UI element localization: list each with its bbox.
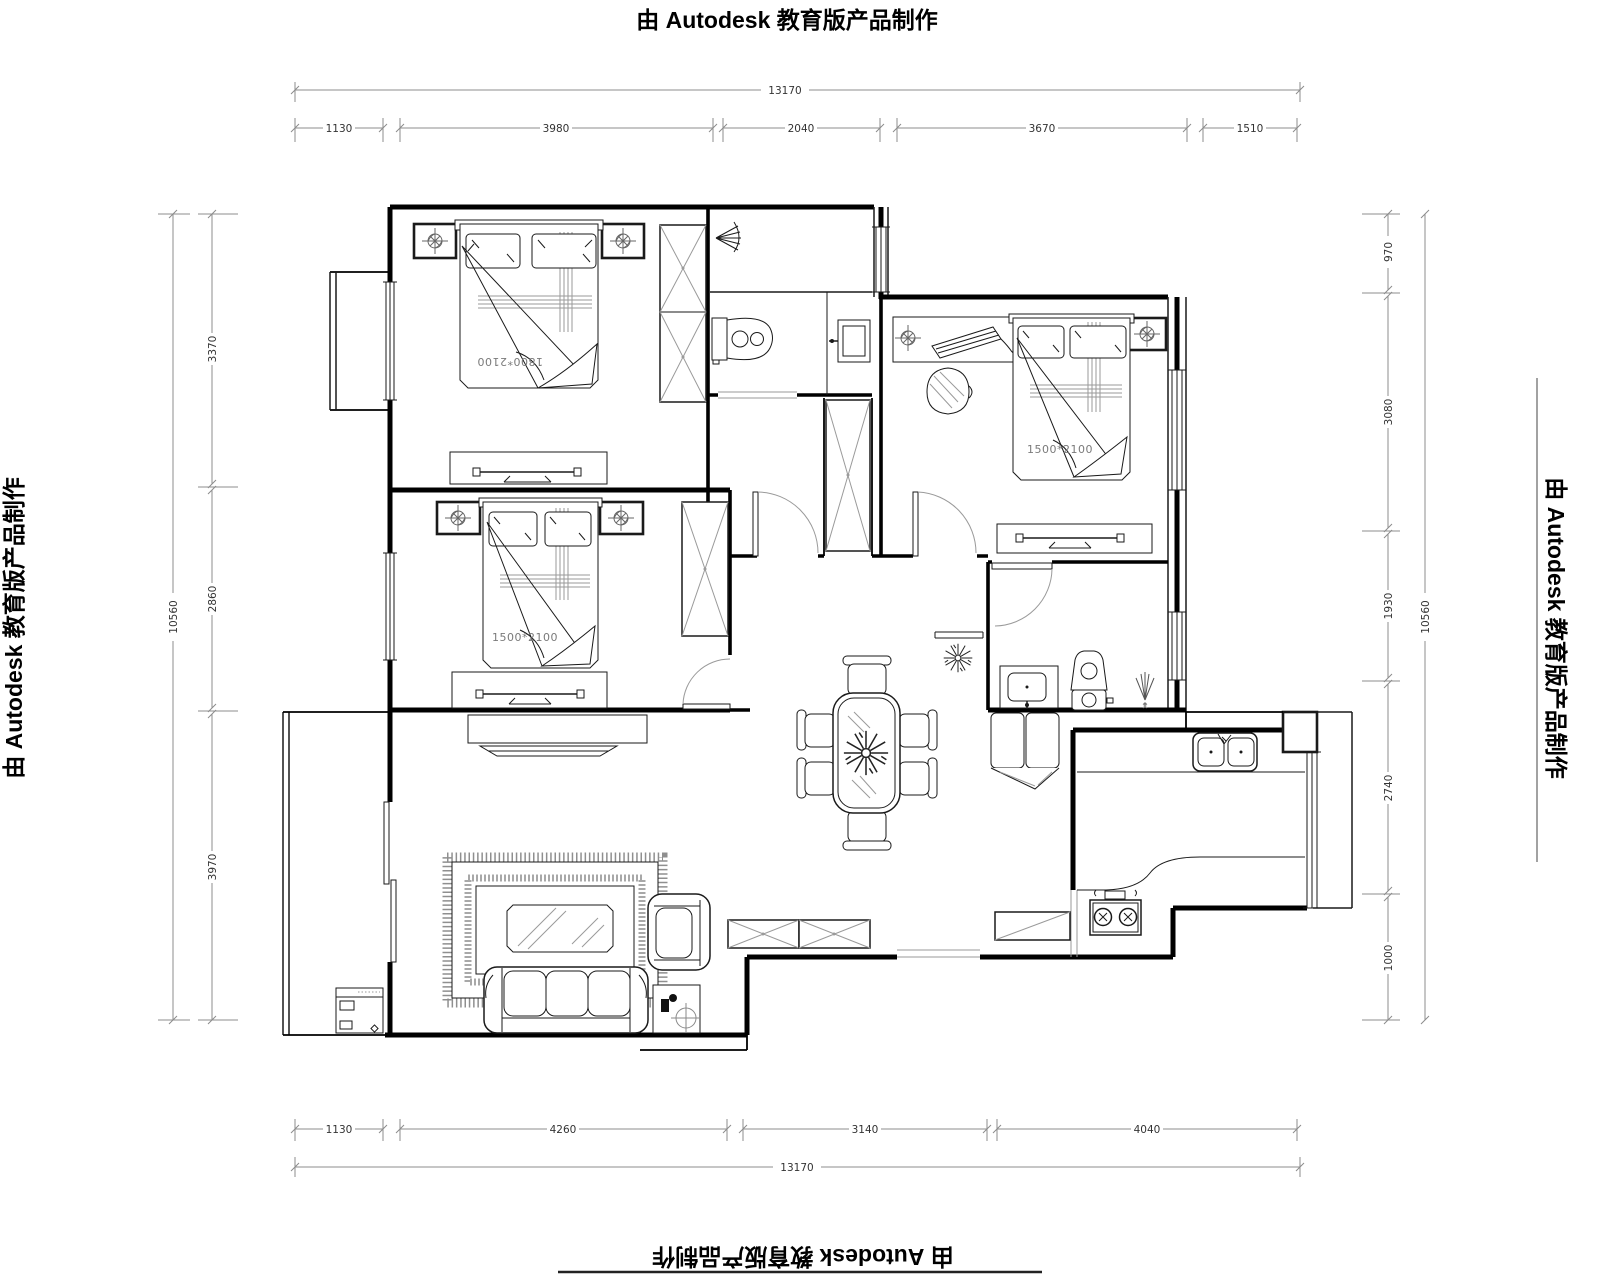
kitchen-threshold-cabinet (995, 912, 1070, 940)
pillow (532, 234, 596, 268)
door-threshold-kitchen (1071, 890, 1077, 957)
bed-third: 1500*2100 (1009, 314, 1134, 480)
pillow (545, 512, 591, 546)
lamp-icon (661, 999, 669, 1012)
bathroom-main (710, 222, 872, 395)
dim-right-seg2: 3080 (1383, 399, 1395, 426)
pillow (489, 512, 537, 546)
dim-top-seg5: 1510 (1237, 123, 1264, 135)
dim-bottom-total: 13170 (780, 1162, 813, 1174)
door-threshold-entry (897, 950, 980, 957)
bed-master: 1800*2100 (455, 220, 603, 388)
dim-left-seg2: 2860 (207, 586, 219, 613)
dining-chair (899, 710, 937, 750)
sliding-door-balcony (384, 802, 396, 962)
balcony-south (283, 712, 390, 1035)
dim-right-seg5: 1000 (1383, 945, 1395, 972)
tv-cabinet (450, 452, 607, 484)
door-bathroom2 (992, 563, 1052, 626)
tv-cabinet (452, 672, 607, 708)
dim-top-seg1: 1130 (326, 123, 353, 135)
corner-cabinet (991, 713, 1059, 789)
watermark-right: 由 Autodesk 教育版产品制作 (1543, 477, 1569, 779)
dimension-left: 10560 3370 2860 3970 (158, 210, 238, 1024)
dimension-top: 13170 1130 3980 2040 3670 1510 (291, 82, 1304, 142)
pillow (1018, 326, 1064, 358)
wall-pier (1283, 712, 1317, 752)
watermark-bottom: 由 Autodesk 教育版产品制作 (652, 1244, 954, 1270)
dining-chair (797, 710, 835, 750)
plant-icon (1136, 672, 1154, 705)
balcony-north (330, 272, 390, 410)
dining-table (833, 693, 900, 813)
wall-shelf (935, 632, 983, 638)
bed-size-label: 1500*2100 (1027, 443, 1093, 456)
dim-top-total: 13170 (768, 85, 801, 97)
dim-left-total: 10560 (168, 600, 180, 633)
watermark-top: 由 Autodesk 教育版产品制作 (636, 7, 938, 33)
shower-head-icon (716, 222, 741, 252)
door-vestibule (753, 492, 818, 556)
dim-right-seg3: 1930 (1383, 593, 1395, 620)
wardrobe (660, 225, 706, 402)
dim-top-seg3: 2040 (788, 123, 815, 135)
dim-bottom-seg3: 3140 (852, 1124, 879, 1136)
flower-icon (944, 644, 973, 673)
bedroom-second: 1500*2100 (437, 498, 728, 708)
counter-edge-lower (1077, 857, 1305, 890)
dining-chair (797, 758, 835, 798)
watermark-left: 由 Autodesk 教育版产品制作 (1, 477, 27, 779)
floor-plan-canvas: 由 Autodesk 教育版产品制作 由 Autodesk 教育版产品制作 由 … (0, 0, 1600, 1280)
dining-chair (899, 758, 937, 798)
dim-top-seg2: 3980 (543, 123, 570, 135)
door-threshold-bathroom1 (718, 392, 797, 398)
bed-second: 1500*2100 (479, 498, 602, 668)
vanity-counter (1000, 666, 1058, 709)
bathroom-second (1000, 651, 1154, 710)
coffee-table (507, 905, 613, 952)
window-bedroom2-west (383, 553, 397, 660)
bed-size-label: 1500*2100 (492, 631, 558, 644)
dim-left-seg1: 3370 (207, 336, 219, 363)
watermarks: 由 Autodesk 教育版产品制作 由 Autodesk 教育版产品制作 由 … (1, 7, 1569, 1270)
cad-sheet: 由 Autodesk 教育版产品制作 由 Autodesk 教育版产品制作 由 … (0, 0, 1600, 1280)
pillow (1070, 326, 1126, 358)
bedroom-master: 1800*2100 (414, 220, 706, 484)
dining-chair (843, 656, 891, 695)
window-bedroom1-west (383, 282, 397, 400)
dim-bottom-seg4: 4040 (1134, 1124, 1161, 1136)
dimension-bottom: 1130 4260 3140 4040 13170 (291, 1119, 1304, 1177)
living-room (447, 715, 710, 1033)
door-bedroom3 (913, 492, 976, 556)
tv-cabinet (468, 715, 647, 756)
window-kitchen-east (1303, 752, 1321, 908)
armchair (648, 894, 710, 970)
sofa (484, 967, 648, 1033)
tv-cabinet (997, 524, 1152, 553)
dim-right-seg4: 2740 (1383, 775, 1395, 802)
bedroom-third: 1500*2100 (893, 314, 1166, 553)
pillow (466, 234, 520, 268)
door-bedroom2 (683, 659, 730, 709)
window-bedroom3-east (1168, 370, 1186, 490)
toilet (1071, 651, 1113, 710)
desk (893, 317, 1024, 362)
dim-bottom-seg1: 1130 (326, 1124, 353, 1136)
stove (1090, 890, 1141, 935)
dining-area (797, 632, 1059, 850)
dim-top-seg4: 3670 (1029, 123, 1056, 135)
dim-right-total: 10560 (1420, 600, 1432, 633)
wardrobe (682, 502, 728, 636)
bed-size-label: 1800*2100 (477, 355, 543, 368)
kitchen (1077, 733, 1305, 935)
dimension-right: 970 3080 1930 2740 1000 10560 (1362, 210, 1432, 1024)
entry-foyer (728, 912, 1070, 948)
desk-chair (927, 368, 972, 414)
dim-left-seg3: 3970 (207, 854, 219, 881)
dim-bottom-seg2: 4260 (550, 1124, 577, 1136)
dim-right-seg1: 970 (1383, 242, 1395, 262)
toilet (712, 318, 773, 364)
hallway-closet (826, 400, 870, 551)
shoe-cabinet (728, 920, 870, 948)
side-table (653, 985, 701, 1033)
washing-machine (336, 988, 383, 1033)
window-bathroom2-east (1168, 612, 1186, 680)
kitchen-sink (1193, 733, 1257, 771)
dining-chair (843, 811, 891, 850)
vanity-sink (829, 320, 870, 362)
